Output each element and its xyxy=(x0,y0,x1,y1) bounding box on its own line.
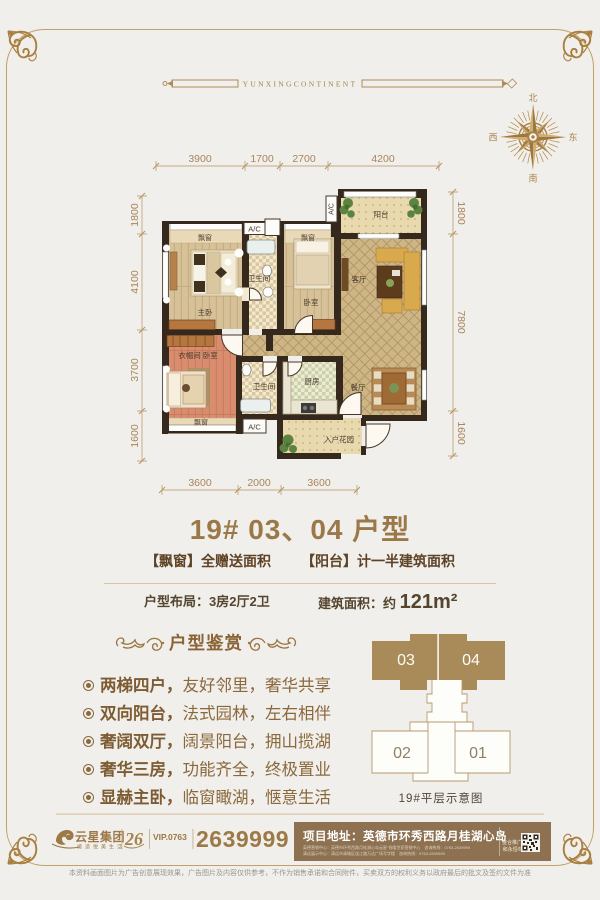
svg-text:A/C: A/C xyxy=(329,203,336,215)
svg-text:2700: 2700 xyxy=(292,153,316,165)
svg-text:东: 东 xyxy=(568,132,577,143)
svg-text:4100: 4100 xyxy=(129,270,141,294)
svg-text:西: 西 xyxy=(488,133,497,143)
svg-text:阳台: 阳台 xyxy=(374,209,389,219)
svg-text:03: 03 xyxy=(397,652,415,669)
svg-text:主卧: 主卧 xyxy=(198,307,213,317)
svg-text:卧室: 卧室 xyxy=(304,297,319,307)
svg-text:02: 02 xyxy=(393,745,411,762)
svg-text:客厅: 客厅 xyxy=(352,274,367,284)
svg-text:04: 04 xyxy=(462,652,480,669)
svg-text:3700: 3700 xyxy=(129,358,141,382)
svg-text:厨房: 厨房 xyxy=(305,376,320,386)
svg-text:1800: 1800 xyxy=(455,201,467,225)
svg-text:北: 北 xyxy=(528,93,537,103)
svg-text:南: 南 xyxy=(528,173,537,184)
svg-text:01: 01 xyxy=(469,745,487,762)
svg-text:衣帽间 卧室: 衣帽间 卧室 xyxy=(178,350,218,360)
svg-text:飘窗: 飘窗 xyxy=(194,418,208,427)
svg-text:飘窗: 飘窗 xyxy=(198,233,212,242)
svg-text:3600: 3600 xyxy=(307,477,331,489)
svg-text:3900: 3900 xyxy=(188,153,212,165)
svg-text:4200: 4200 xyxy=(371,153,395,165)
svg-text:A/C: A/C xyxy=(248,225,261,234)
svg-text:入户花园: 入户花园 xyxy=(324,434,354,444)
svg-text:云星集团: 云星集团 xyxy=(75,829,125,844)
svg-text:YUNXINGCONTINENT: YUNXINGCONTINENT xyxy=(243,80,358,89)
svg-text:缔造悦美生活: 缔造悦美生活 xyxy=(77,844,125,851)
svg-text:A/C: A/C xyxy=(248,423,261,432)
svg-text:餐厅: 餐厅 xyxy=(351,383,366,392)
svg-text:1700: 1700 xyxy=(250,153,274,165)
svg-text:卫生间: 卫生间 xyxy=(253,381,276,391)
svg-text:7800: 7800 xyxy=(455,310,467,334)
svg-text:19#平层示意图: 19#平层示意图 xyxy=(399,791,484,805)
svg-text:1600: 1600 xyxy=(129,424,141,448)
svg-text:3600: 3600 xyxy=(188,477,212,489)
svg-text:2000: 2000 xyxy=(247,477,271,489)
svg-text:卫生间: 卫生间 xyxy=(248,273,271,283)
svg-text:1800: 1800 xyxy=(129,203,141,227)
svg-text:飘窗: 飘窗 xyxy=(301,233,315,242)
svg-text:1600: 1600 xyxy=(455,421,467,445)
